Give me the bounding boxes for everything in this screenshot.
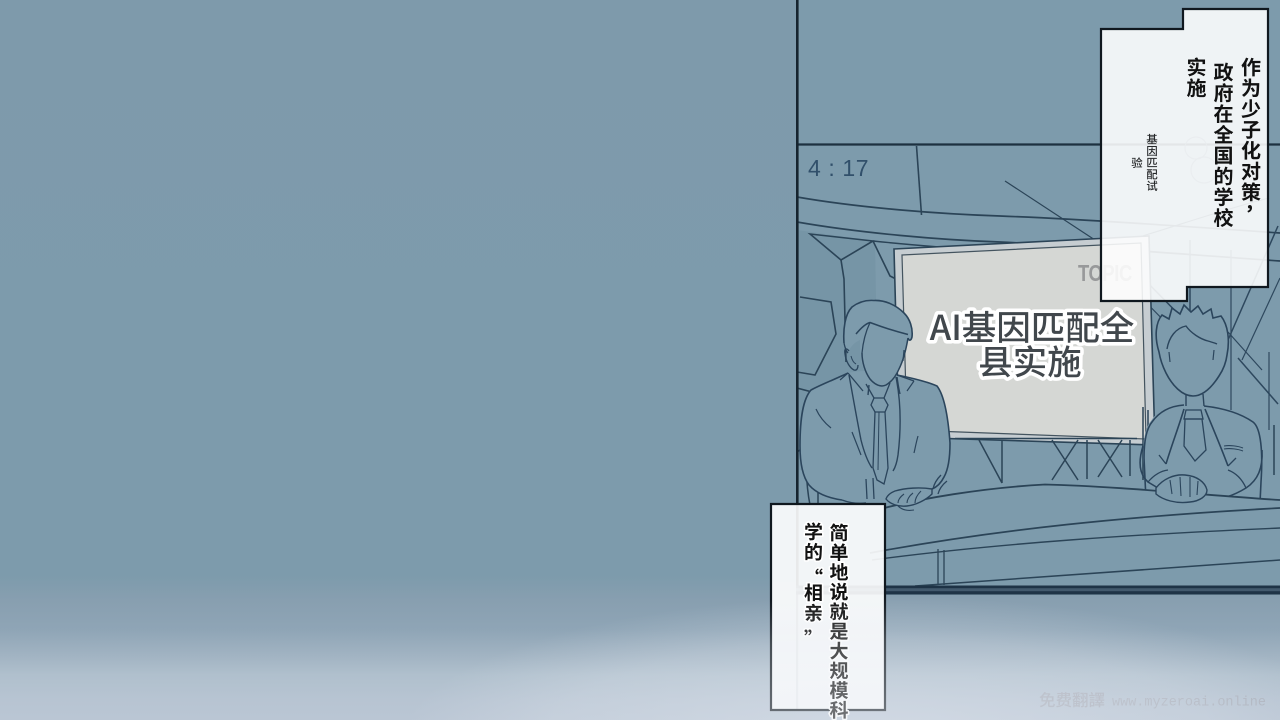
- svg-text:4 : 17: 4 : 17: [808, 155, 869, 181]
